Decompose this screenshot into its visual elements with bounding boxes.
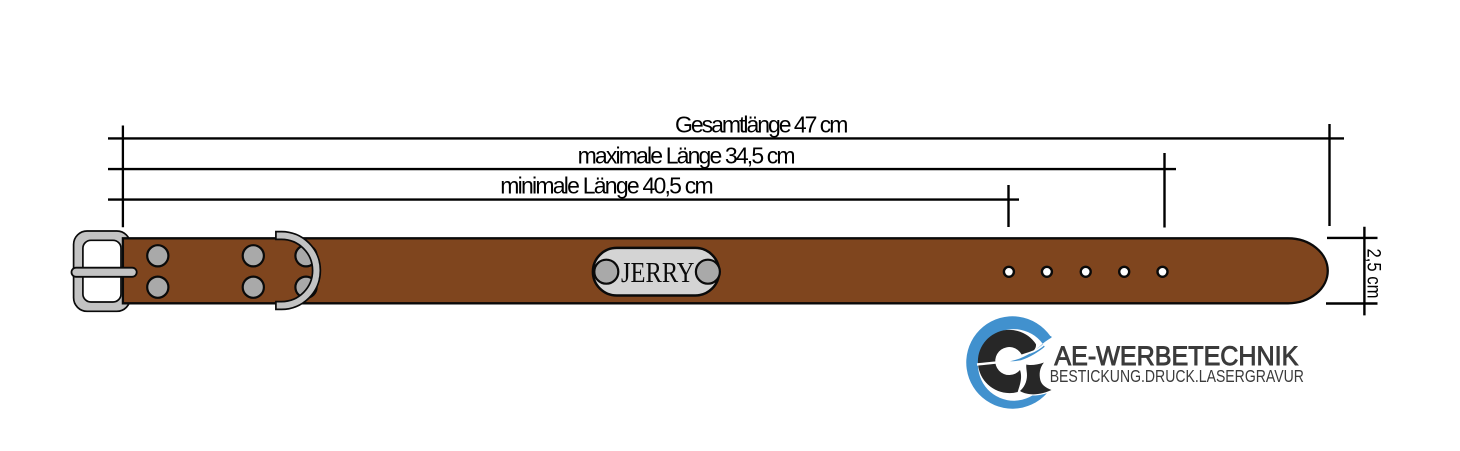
svg-text:maximale Länge 34,5 cm: maximale Länge 34,5 cm [578, 142, 796, 168]
svg-text:2,5 cm: 2,5 cm [1363, 249, 1385, 299]
svg-text:JERRY: JERRY [621, 257, 695, 289]
svg-text:BESTICKUNG.DRUCK.LASERGRAVUR: BESTICKUNG.DRUCK.LASERGRAVUR [1050, 366, 1304, 386]
svg-text:Gesamtlänge 47 cm: Gesamtlänge 47 cm [675, 112, 848, 138]
svg-text:minimale Länge 40,5 cm: minimale Länge 40,5 cm [500, 172, 714, 198]
